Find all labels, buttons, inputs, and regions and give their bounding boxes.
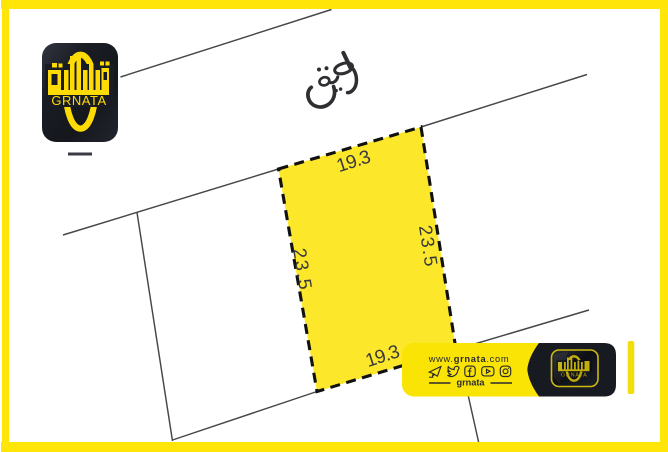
svg-text:GRNATA: GRNATA (561, 372, 588, 378)
svg-text:www.grnata.com: www.grnata.com (428, 354, 510, 364)
svg-text:grnata: grnata (456, 378, 485, 388)
svg-text:GRNATA: GRNATA (51, 93, 106, 108)
